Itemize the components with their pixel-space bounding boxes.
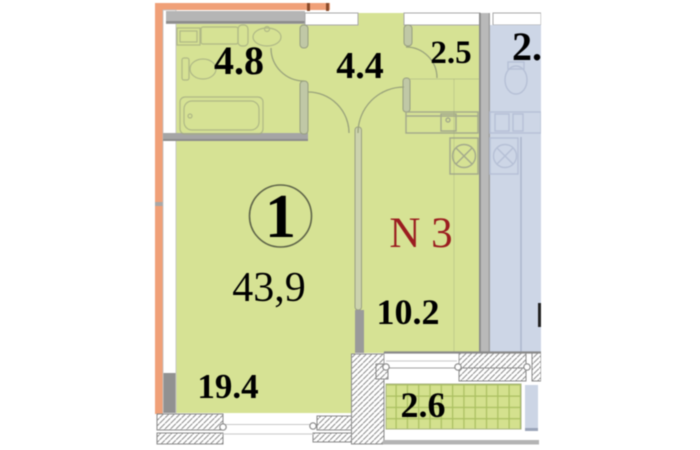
svg-text:10.2: 10.2 (377, 292, 440, 332)
svg-text:2.6: 2.6 (401, 385, 446, 425)
svg-text:43,9: 43,9 (232, 265, 306, 311)
svg-text:1: 1 (265, 183, 296, 251)
svg-text:2.5: 2.5 (430, 35, 471, 71)
svg-text:19.4: 19.4 (197, 367, 258, 406)
svg-text:4.4: 4.4 (336, 45, 384, 87)
svg-text:4.8: 4.8 (214, 38, 264, 83)
svg-text:N 3: N 3 (389, 210, 452, 257)
